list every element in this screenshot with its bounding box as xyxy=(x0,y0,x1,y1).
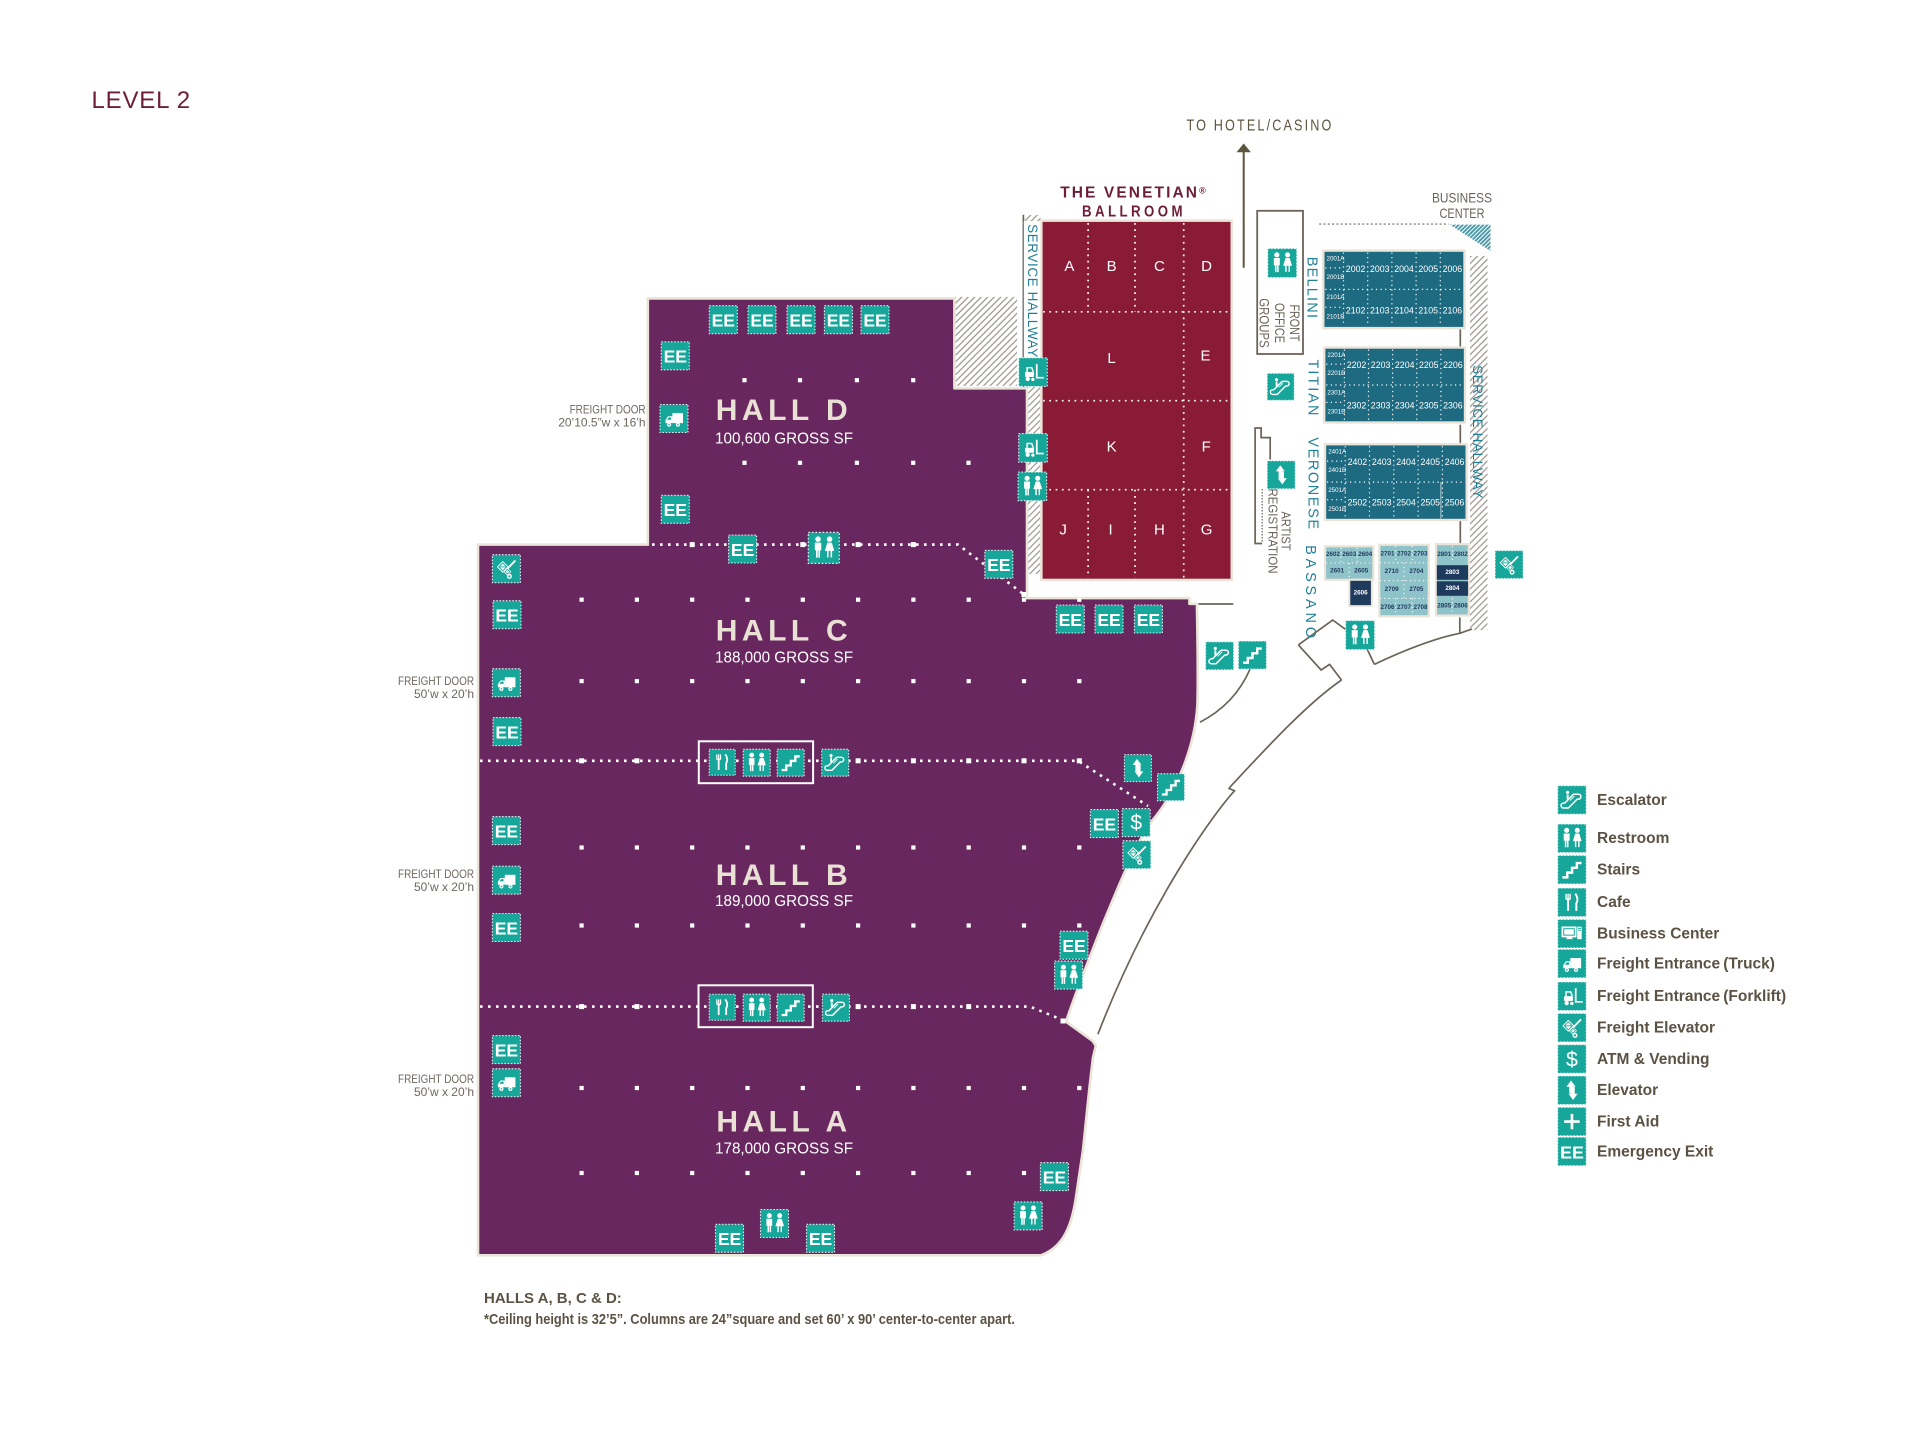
svg-text:2305: 2305 xyxy=(1419,400,1439,410)
svg-text:TO HOTEL/CASINO: TO HOTEL/CASINO xyxy=(1187,118,1334,135)
svg-text:2702: 2702 xyxy=(1397,550,1412,557)
svg-text:2804: 2804 xyxy=(1445,585,1460,592)
svg-text:2206: 2206 xyxy=(1443,360,1463,370)
svg-text:20’10.5”w x 16’h: 20’10.5”w x 16’h xyxy=(558,416,645,430)
svg-text:2505: 2505 xyxy=(1421,498,1441,508)
svg-text:BASSANO: BASSANO xyxy=(1302,545,1318,642)
svg-text:2504: 2504 xyxy=(1396,498,1416,508)
svg-text:H: H xyxy=(1154,522,1165,539)
svg-text:2701: 2701 xyxy=(1380,550,1395,557)
svg-text:2406: 2406 xyxy=(1445,457,1465,467)
svg-text:2105: 2105 xyxy=(1418,305,1438,315)
svg-text:2604: 2604 xyxy=(1358,551,1373,558)
svg-text:FREIGHT DOOR: FREIGHT DOOR xyxy=(398,674,474,688)
svg-text:HALL A: HALL A xyxy=(716,1105,851,1138)
svg-text:2601: 2601 xyxy=(1330,568,1345,575)
svg-text:SERVICE HALLWAY: SERVICE HALLWAY xyxy=(1025,224,1040,358)
svg-text:2304: 2304 xyxy=(1395,400,1415,410)
svg-text:2501B: 2501B xyxy=(1328,506,1346,513)
svg-text:2705: 2705 xyxy=(1409,586,1424,593)
svg-text:2606: 2606 xyxy=(1354,590,1369,597)
svg-text:2703: 2703 xyxy=(1413,550,1428,557)
svg-text:2402: 2402 xyxy=(1348,457,1368,467)
svg-text:2101A: 2101A xyxy=(1327,294,1346,301)
svg-text:First Aid: First Aid xyxy=(1597,1113,1659,1130)
svg-text:2605: 2605 xyxy=(1354,568,1369,575)
svg-text:Freight Elevator: Freight Elevator xyxy=(1597,1020,1715,1037)
svg-text:2106: 2106 xyxy=(1443,305,1463,315)
svg-text:2101B: 2101B xyxy=(1327,314,1345,321)
svg-text:50’w x 20’h: 50’w x 20’h xyxy=(414,1085,474,1099)
svg-text:I: I xyxy=(1109,522,1113,539)
svg-text:2602: 2602 xyxy=(1326,551,1341,558)
svg-text:Elevator: Elevator xyxy=(1597,1082,1658,1099)
svg-text:Cafe: Cafe xyxy=(1597,894,1631,911)
svg-text:OFFICE: OFFICE xyxy=(1272,303,1287,343)
svg-text:2704: 2704 xyxy=(1409,568,1424,575)
svg-text:2202: 2202 xyxy=(1347,360,1367,370)
svg-text:2403: 2403 xyxy=(1372,457,1392,467)
svg-text:2004: 2004 xyxy=(1394,264,1414,274)
svg-text:2306: 2306 xyxy=(1443,400,1463,410)
svg-text:BALLROOM: BALLROOM xyxy=(1082,204,1186,221)
svg-text:Restroom: Restroom xyxy=(1597,830,1669,847)
svg-text:2201B: 2201B xyxy=(1327,370,1345,377)
svg-text:*Ceiling height is 32’5”. Colu: *Ceiling height is 32’5”. Columns are 24… xyxy=(484,1311,1015,1328)
svg-text:GROUPS: GROUPS xyxy=(1257,298,1272,348)
svg-text:2803: 2803 xyxy=(1445,569,1460,576)
svg-text:FREIGHT DOOR: FREIGHT DOOR xyxy=(398,1072,474,1086)
svg-text:VERONESE: VERONESE xyxy=(1305,437,1321,530)
svg-text:2801: 2801 xyxy=(1437,551,1452,558)
svg-text:Freight Entrance (Truck): Freight Entrance (Truck) xyxy=(1597,955,1775,972)
svg-text:2002: 2002 xyxy=(1346,264,1366,274)
svg-text:2301A: 2301A xyxy=(1327,390,1346,397)
svg-text:FRONT: FRONT xyxy=(1287,305,1302,342)
svg-text:2006: 2006 xyxy=(1443,264,1463,274)
svg-text:2707: 2707 xyxy=(1397,604,1412,611)
svg-text:2203: 2203 xyxy=(1371,360,1391,370)
svg-text:2001B: 2001B xyxy=(1327,274,1345,281)
svg-text:2102: 2102 xyxy=(1346,305,1366,315)
svg-text:B: B xyxy=(1107,258,1117,275)
svg-text:THE VENETIAN®: THE VENETIAN® xyxy=(1060,185,1208,202)
svg-text:SERVICE HALLWAY: SERVICE HALLWAY xyxy=(1470,365,1485,499)
svg-text:2005: 2005 xyxy=(1418,264,1438,274)
svg-text:2104: 2104 xyxy=(1394,305,1414,315)
svg-text:100,600 GROSS SF: 100,600 GROSS SF xyxy=(715,431,853,448)
svg-text:2802: 2802 xyxy=(1454,551,1469,558)
svg-text:Emergency Exit: Emergency Exit xyxy=(1597,1143,1713,1160)
svg-text:2201A: 2201A xyxy=(1327,352,1346,359)
svg-text:2302: 2302 xyxy=(1347,400,1367,410)
svg-text:A: A xyxy=(1064,258,1074,275)
svg-text:HALL C: HALL C xyxy=(716,615,852,648)
svg-text:50’w x 20’h: 50’w x 20’h xyxy=(414,687,474,701)
svg-text:L: L xyxy=(1107,350,1115,367)
svg-text:Freight Entrance (Forklift): Freight Entrance (Forklift) xyxy=(1597,988,1786,1005)
svg-text:2506: 2506 xyxy=(1445,498,1465,508)
svg-text:2205: 2205 xyxy=(1419,360,1439,370)
svg-text:2204: 2204 xyxy=(1395,360,1415,370)
svg-text:FREIGHT DOOR: FREIGHT DOOR xyxy=(398,867,474,881)
svg-text:2503: 2503 xyxy=(1372,498,1392,508)
svg-text:2003: 2003 xyxy=(1370,264,1390,274)
svg-text:D: D xyxy=(1201,258,1212,275)
svg-text:Business Center: Business Center xyxy=(1597,926,1719,943)
svg-text:F: F xyxy=(1202,438,1211,455)
svg-text:2710: 2710 xyxy=(1385,568,1400,575)
svg-text:178,000 GROSS SF: 178,000 GROSS SF xyxy=(715,1140,853,1157)
svg-text:2708: 2708 xyxy=(1413,604,1428,611)
svg-text:FREIGHT DOOR: FREIGHT DOOR xyxy=(570,403,646,417)
svg-text:2805: 2805 xyxy=(1437,602,1452,609)
svg-text:C: C xyxy=(1154,258,1165,275)
svg-text:REGISTRATION: REGISTRATION xyxy=(1266,489,1280,574)
svg-text:2401A: 2401A xyxy=(1328,449,1347,456)
svg-text:2001A: 2001A xyxy=(1327,255,1346,262)
svg-text:50’w x 20’h: 50’w x 20’h xyxy=(414,880,474,894)
svg-text:2303: 2303 xyxy=(1371,400,1391,410)
svg-text:TITIAN: TITIAN xyxy=(1305,360,1321,418)
svg-text:2806: 2806 xyxy=(1454,602,1469,609)
svg-text:ATM & Vending: ATM & Vending xyxy=(1597,1051,1710,1068)
svg-text:CENTER: CENTER xyxy=(1440,205,1485,221)
svg-text:BUSINESS: BUSINESS xyxy=(1432,190,1492,206)
svg-text:189,000 GROSS SF: 189,000 GROSS SF xyxy=(715,893,853,910)
svg-text:Stairs: Stairs xyxy=(1597,862,1640,879)
svg-text:BELLINI: BELLINI xyxy=(1303,257,1319,319)
svg-text:HALL D: HALL D xyxy=(716,394,852,427)
svg-text:2603: 2603 xyxy=(1342,551,1357,558)
svg-text:2501A: 2501A xyxy=(1328,487,1347,494)
svg-text:J: J xyxy=(1059,522,1067,539)
svg-text:2103: 2103 xyxy=(1370,305,1390,315)
svg-text:2502: 2502 xyxy=(1348,498,1368,508)
svg-text:2709: 2709 xyxy=(1385,586,1400,593)
svg-text:2404: 2404 xyxy=(1396,457,1416,467)
svg-text:G: G xyxy=(1201,522,1213,539)
svg-text:E: E xyxy=(1200,347,1210,364)
svg-text:2706: 2706 xyxy=(1380,604,1395,611)
svg-text:ARTIST: ARTIST xyxy=(1279,512,1293,551)
svg-text:HALLS A, B, C & D:: HALLS A, B, C & D: xyxy=(484,1290,622,1307)
svg-text:Escalator: Escalator xyxy=(1597,792,1667,809)
svg-text:HALL B: HALL B xyxy=(716,859,852,892)
svg-text:LEVEL 2: LEVEL 2 xyxy=(92,87,191,114)
svg-text:2301B: 2301B xyxy=(1327,408,1345,415)
svg-text:2405: 2405 xyxy=(1421,457,1441,467)
svg-text:2401B: 2401B xyxy=(1328,467,1346,474)
svg-text:K: K xyxy=(1107,438,1117,455)
svg-text:188,000 GROSS SF: 188,000 GROSS SF xyxy=(715,650,853,667)
